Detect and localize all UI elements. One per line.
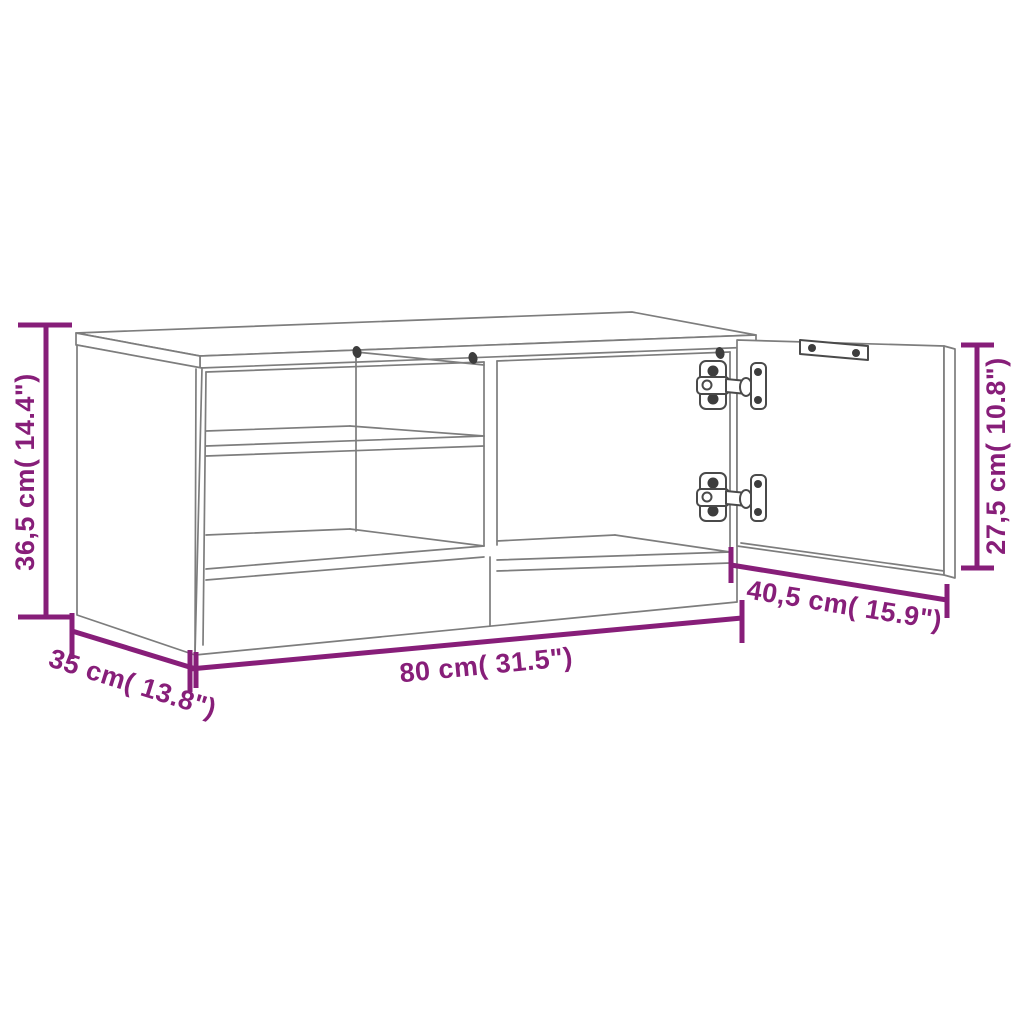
cabinet-side-panel	[77, 345, 202, 655]
diagram-canvas: 36,5 cm( 14.4") 80 cm( 31.5") 35 cm( 13.…	[0, 0, 1024, 1024]
hinge-top	[697, 361, 766, 409]
dimension-height: 36,5 cm( 14.4")	[10, 325, 72, 617]
dimension-label: 27,5 cm( 10.8")	[981, 357, 1011, 554]
cabinet-carcass-lines	[195, 345, 737, 655]
door-panel	[737, 340, 955, 578]
hinge-bottom	[697, 473, 766, 521]
dimension-width: 80 cm( 31.5")	[190, 600, 742, 692]
dimension-label: 36,5 cm( 14.4")	[10, 373, 40, 570]
front-apron	[195, 557, 737, 655]
middle-shelf	[206, 426, 484, 456]
bottom-shelf-right	[497, 535, 730, 571]
dimension-door-height: 27,5 cm( 10.8")	[961, 345, 1011, 568]
cabinet-top-panel	[76, 312, 756, 368]
furniture-diagram-svg: 36,5 cm( 14.4") 80 cm( 31.5") 35 cm( 13.…	[0, 0, 1024, 1024]
bottom-shelf-left	[206, 529, 484, 580]
